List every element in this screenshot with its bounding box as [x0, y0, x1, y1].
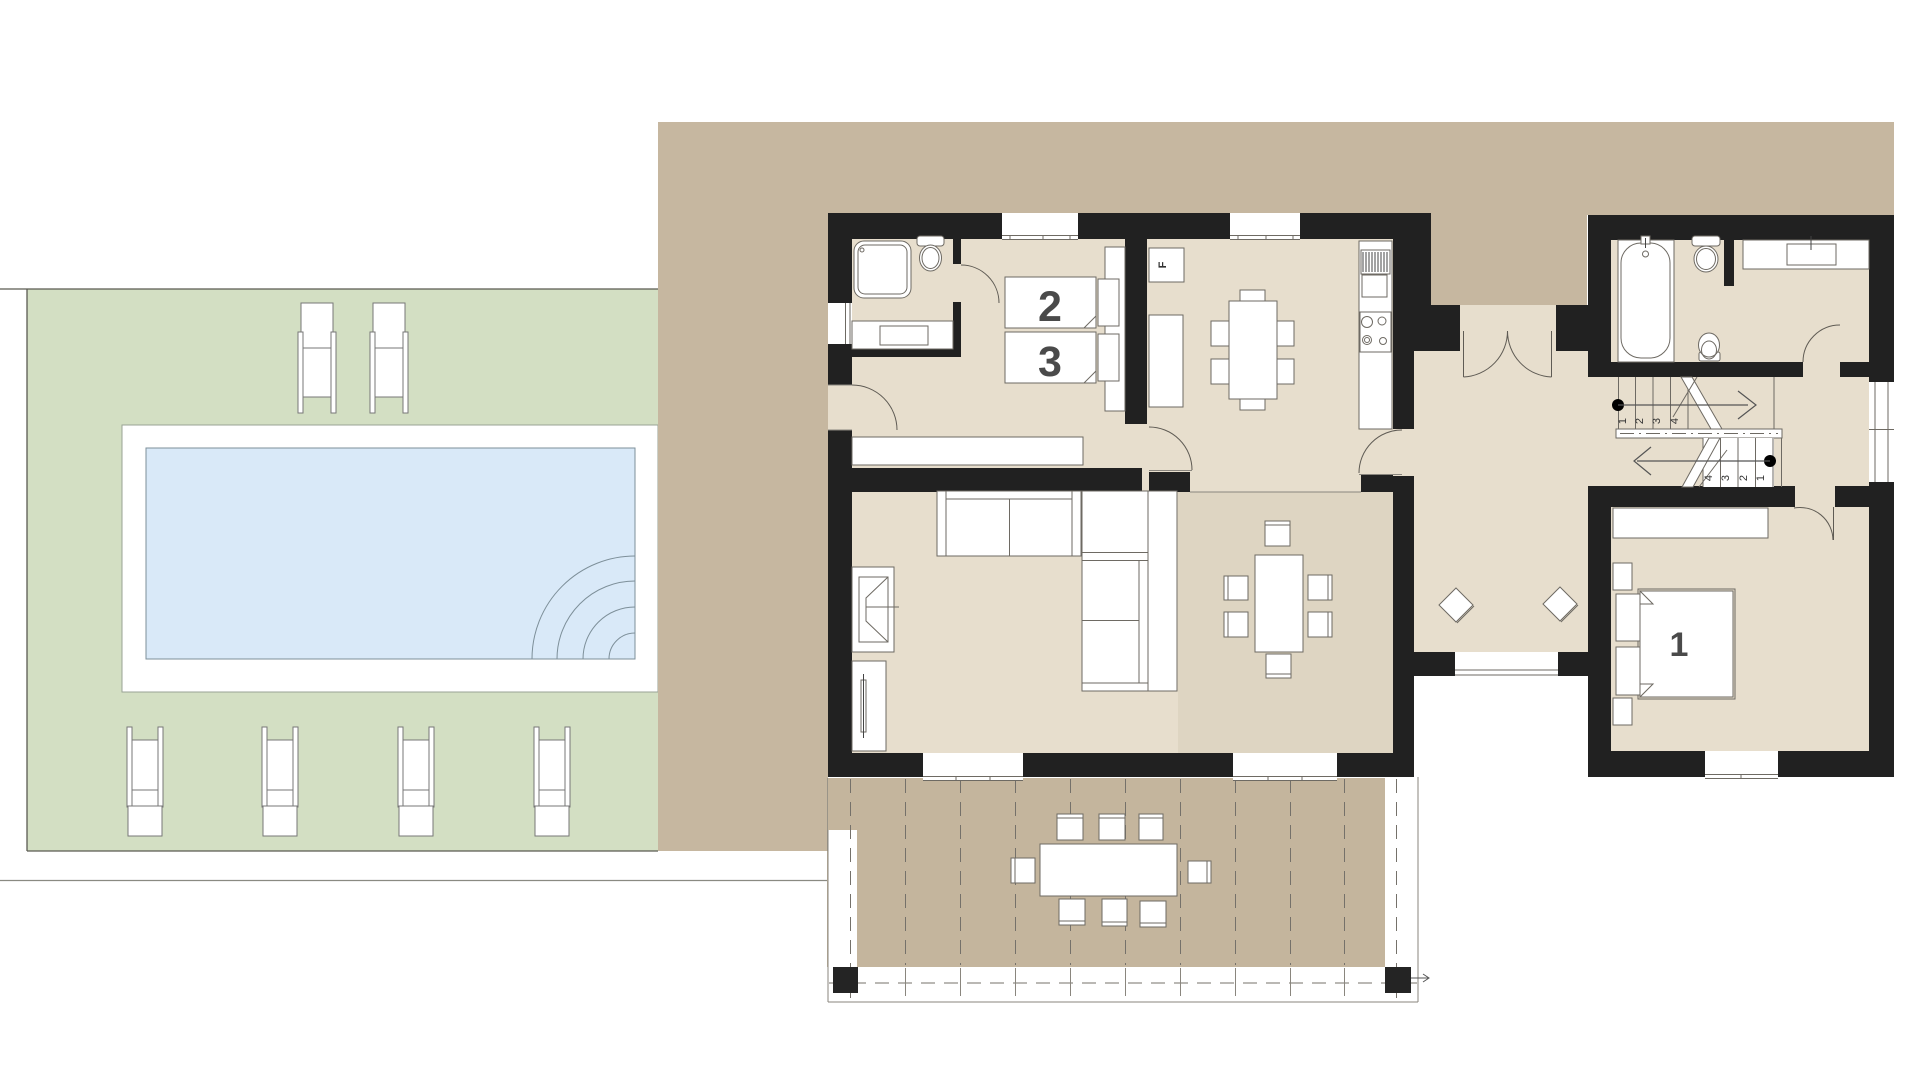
svg-text:1: 1	[1755, 475, 1767, 481]
svg-text:1: 1	[1617, 418, 1629, 424]
svg-text:2: 2	[1738, 475, 1750, 481]
svg-text:3: 3	[1651, 418, 1663, 424]
svg-text:2: 2	[1038, 283, 1062, 331]
svg-text:3: 3	[1038, 338, 1062, 386]
svg-text:3: 3	[1720, 475, 1732, 481]
svg-text:4: 4	[1703, 475, 1715, 481]
svg-text:F: F	[1157, 261, 1169, 268]
svg-text:2: 2	[1634, 418, 1646, 424]
svg-text:4: 4	[1669, 418, 1681, 424]
svg-text:1: 1	[1670, 626, 1689, 664]
